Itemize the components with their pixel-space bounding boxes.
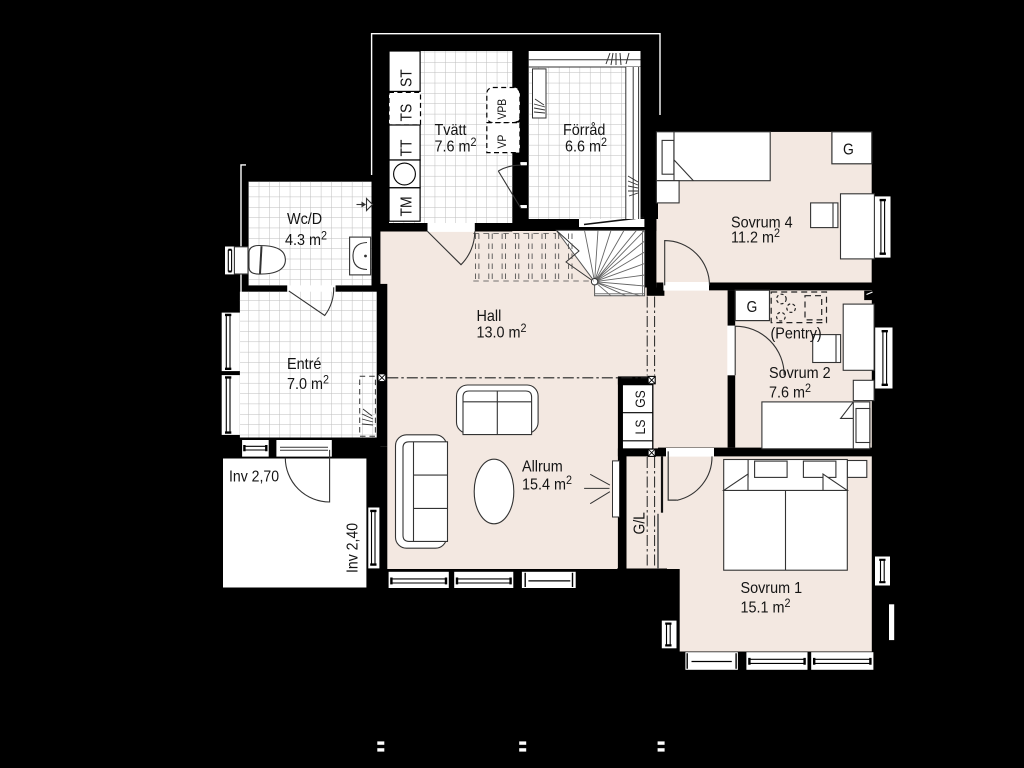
svg-text:Sovrum 2: Sovrum 2 — [769, 364, 831, 382]
svg-text:7.6 m2: 7.6 m2 — [435, 137, 477, 156]
svg-text:ST: ST — [398, 69, 416, 87]
svg-text:11.2 m2: 11.2 m2 — [731, 228, 780, 247]
svg-text:G: G — [843, 141, 854, 159]
svg-text:Allrum: Allrum — [522, 458, 563, 476]
svg-text:Förråd: Förråd — [563, 121, 605, 139]
svg-text:Tvätt: Tvätt — [435, 121, 468, 139]
svg-text:Entré: Entré — [287, 355, 321, 373]
svg-text:Sovrum 1: Sovrum 1 — [741, 579, 803, 597]
svg-text:15.1 m2: 15.1 m2 — [741, 598, 791, 617]
svg-text:VP: VP — [497, 135, 510, 149]
svg-text:13.0 m2: 13.0 m2 — [477, 323, 527, 342]
svg-text:Hall: Hall — [477, 307, 502, 325]
svg-text:15.4 m2: 15.4 m2 — [522, 475, 572, 494]
svg-text:7.0 m2: 7.0 m2 — [287, 374, 329, 393]
svg-text:TS: TS — [398, 104, 416, 122]
svg-text:GS: GS — [632, 390, 648, 408]
svg-text:G/L: G/L — [631, 512, 649, 534]
svg-text:Inv 2,40: Inv 2,40 — [344, 523, 362, 573]
svg-text:(Pentry): (Pentry) — [771, 325, 822, 343]
svg-text:G: G — [747, 298, 758, 316]
svg-text:Wc/D: Wc/D — [287, 210, 322, 228]
svg-text:Inv 2,70: Inv 2,70 — [229, 468, 279, 486]
svg-text:4.3 m2: 4.3 m2 — [285, 230, 327, 249]
svg-text:TT: TT — [398, 140, 416, 157]
svg-text:TM: TM — [398, 196, 416, 216]
svg-text:VPB: VPB — [497, 99, 510, 120]
svg-text:6.6 m2: 6.6 m2 — [565, 137, 607, 156]
svg-text:LS: LS — [632, 419, 648, 434]
svg-text:7.6 m2: 7.6 m2 — [769, 383, 811, 402]
